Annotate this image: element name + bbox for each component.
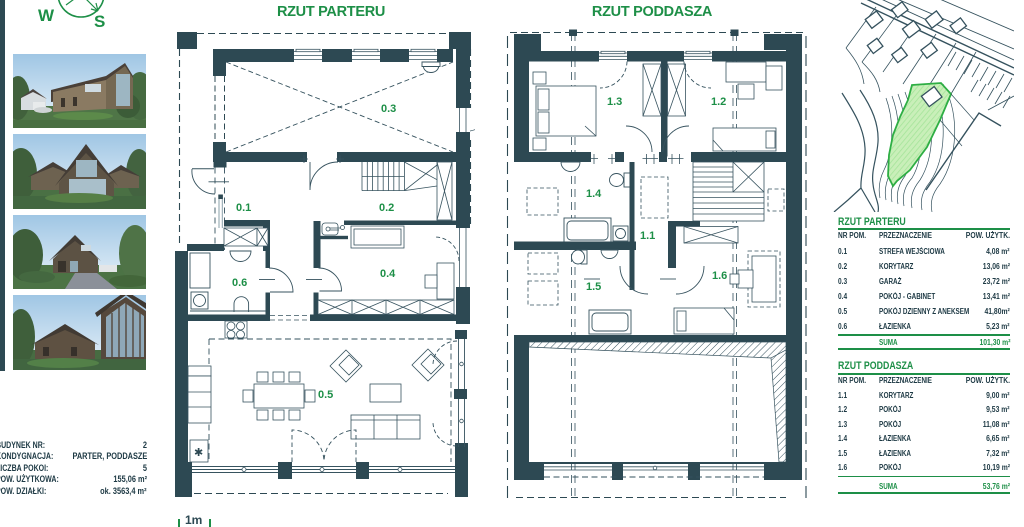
svg-text:0.4: 0.4: [380, 268, 396, 280]
svg-text:1.3: 1.3: [607, 96, 622, 108]
svg-text:1.2: 1.2: [711, 96, 726, 108]
svg-text:1.5: 1.5: [586, 281, 601, 293]
svg-text:S: S: [94, 12, 105, 31]
svg-text:✱: ✱: [194, 447, 203, 459]
svg-text:0.1: 0.1: [236, 202, 251, 214]
svg-text:0.6: 0.6: [232, 277, 247, 289]
svg-text:0.5: 0.5: [318, 389, 333, 401]
svg-text:1.1: 1.1: [640, 230, 655, 242]
svg-text:1.6: 1.6: [712, 270, 727, 282]
svg-text:0.3: 0.3: [381, 103, 396, 115]
svg-text:0.2: 0.2: [379, 202, 394, 214]
svg-text:1.4: 1.4: [586, 188, 602, 200]
svg-text:W: W: [38, 6, 55, 25]
